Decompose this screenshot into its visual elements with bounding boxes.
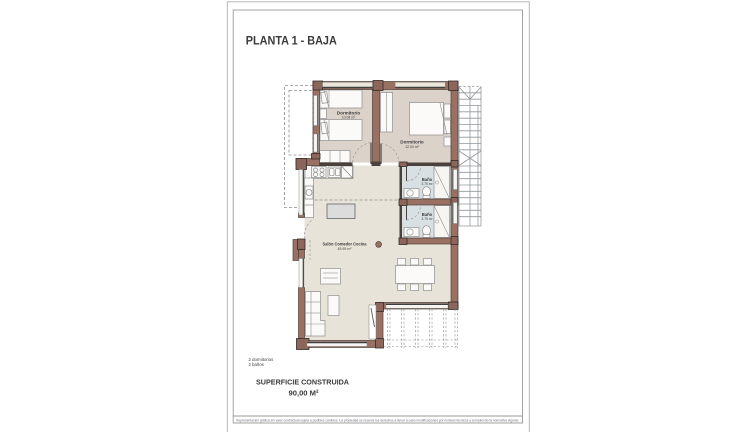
svg-text:Representación gráfica sin val: Representación gráfica sin valor contrac… <box>236 418 519 422</box>
svg-text:SUPERFICIE CONSTRUIDA: SUPERFICIE CONSTRUIDA <box>256 378 349 387</box>
svg-text:90,00 M²: 90,00 M² <box>289 388 319 397</box>
svg-text:45.95 m²: 45.95 m² <box>338 247 353 251</box>
svg-text:3.75 m²: 3.75 m² <box>422 182 434 186</box>
svg-text:2 baños: 2 baños <box>249 362 264 367</box>
svg-text:Salón Comedor Cocina: Salón Comedor Cocina <box>323 241 367 246</box>
svg-text:Dormitorio: Dormitorio <box>400 140 424 145</box>
svg-text:10.08 m²: 10.08 m² <box>342 116 356 120</box>
svg-text:12.00 m²: 12.00 m² <box>405 145 419 149</box>
svg-text:Dormitorio: Dormitorio <box>337 110 361 115</box>
svg-text:PLANTA 1 - BAJA: PLANTA 1 - BAJA <box>246 35 338 48</box>
svg-text:3.75 m²: 3.75 m² <box>422 217 434 221</box>
